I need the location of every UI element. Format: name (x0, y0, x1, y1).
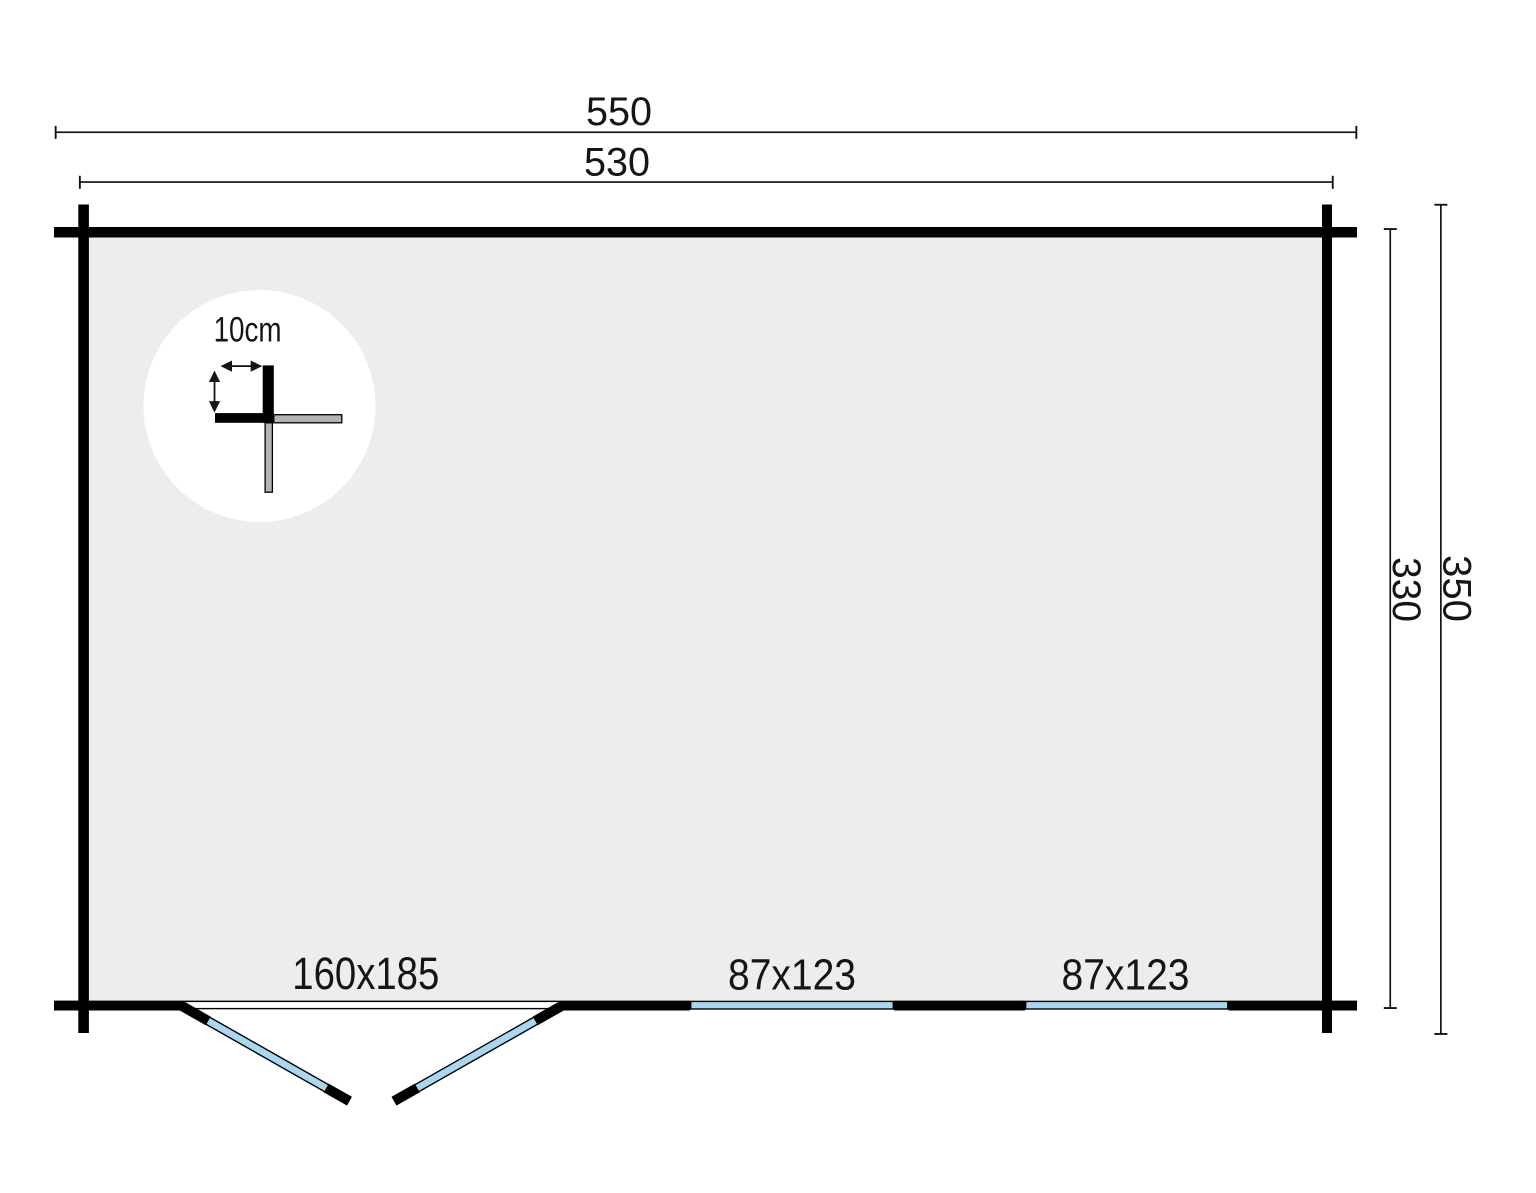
svg-text:530: 530 (584, 141, 650, 185)
svg-text:87x123: 87x123 (1062, 952, 1190, 1000)
svg-text:550: 550 (586, 90, 652, 134)
svg-text:330: 330 (1384, 557, 1428, 622)
svg-text:160x185: 160x185 (292, 948, 439, 999)
svg-text:10cm: 10cm (214, 309, 282, 349)
svg-text:87x123: 87x123 (728, 952, 856, 1000)
svg-text:350: 350 (1435, 555, 1479, 622)
